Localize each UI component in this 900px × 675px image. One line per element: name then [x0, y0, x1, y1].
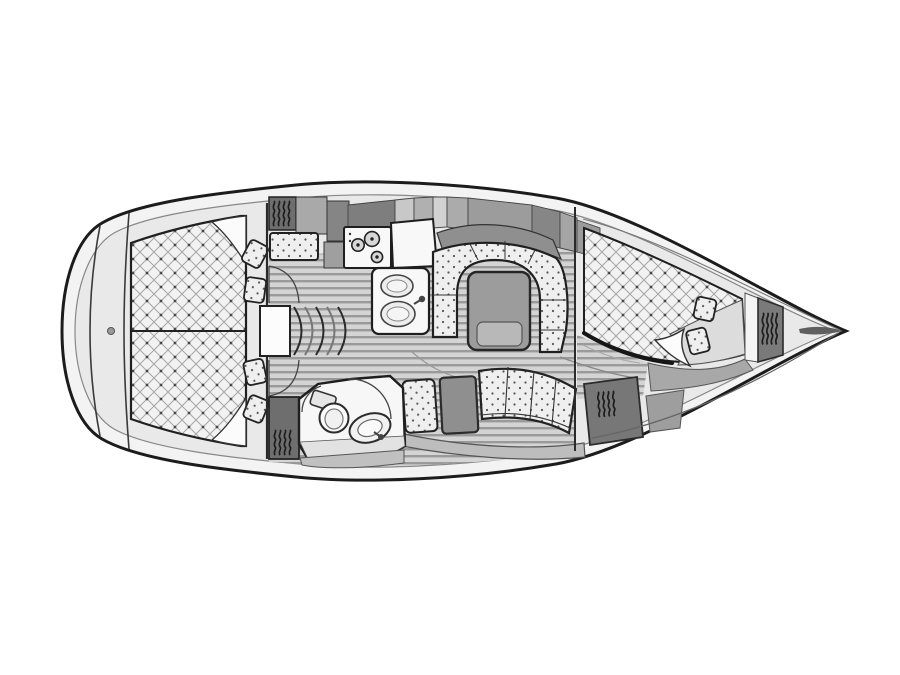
pillow — [693, 296, 717, 322]
cabinet-wedge — [646, 390, 684, 432]
sink-basin — [381, 302, 415, 327]
salon-table-inset — [477, 322, 522, 346]
galley-counter — [391, 219, 437, 268]
stove-burner — [352, 239, 364, 251]
dotted-shelf-cushion — [270, 233, 318, 260]
floor-plan-svg — [0, 0, 900, 675]
side-seat — [440, 376, 479, 434]
stove-knob — [349, 233, 351, 235]
yacht-floor-plan — [0, 0, 900, 675]
bottom-settee-cushion-small — [402, 379, 438, 433]
pillow — [243, 358, 268, 386]
hanging-locker-salon — [584, 377, 643, 445]
sink-basin — [381, 275, 413, 297]
stove-knob — [349, 240, 351, 242]
stove-burner — [371, 251, 382, 262]
hanging-locker-bottom — [269, 397, 299, 459]
pillow — [243, 277, 266, 304]
cabinet-block — [296, 197, 327, 234]
stove-burner — [365, 232, 380, 247]
bow-bulkhead-band — [745, 293, 758, 362]
stern-fitting-dot — [108, 328, 115, 335]
companionway-platform — [260, 306, 290, 356]
head-compartment — [299, 376, 405, 468]
